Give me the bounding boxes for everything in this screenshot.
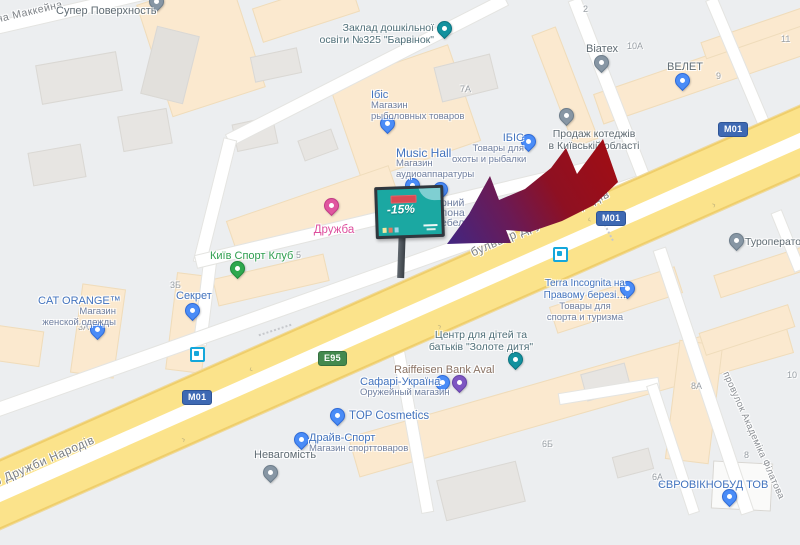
poi-pin-icon[interactable]	[726, 230, 747, 251]
billboard-note	[423, 224, 437, 226]
traffic-arrow-icon	[434, 315, 443, 324]
building-number: 6Б	[542, 439, 553, 449]
poi-label-velet[interactable]: ВЕЛЕТ	[654, 61, 716, 73]
transit-stop-icon[interactable]	[190, 347, 205, 362]
poi-name: Terra Incognita на	[542, 278, 628, 290]
poi-subtitle: Магазин спорттоваров	[309, 444, 408, 455]
poi-name: Продаж котеджів	[538, 128, 650, 140]
traffic-arrow-icon	[708, 193, 717, 202]
poi-name: Заклад дошкільної	[272, 22, 434, 34]
poi-label-barvinok[interactable]: Заклад дошкільної освіти №325 "Барвінок"	[272, 22, 434, 46]
poi-label-viatex[interactable]: Віатех	[572, 43, 632, 55]
poi-subtitle: рыболовных товаров	[371, 112, 464, 123]
poi-label-kyiv-sport-club[interactable]: Київ Спорт Клуб	[210, 250, 293, 262]
poi-name: Дружба	[303, 224, 365, 236]
building-number: 11	[781, 34, 790, 44]
poi-label-drive-sport[interactable]: Драйв-Спорт Магазин спорттоваров	[309, 432, 408, 455]
poi-label-nevahomist[interactable]: Невагомість	[254, 449, 316, 461]
building-number: 3Б	[170, 280, 181, 290]
poi-label-evroviknobud[interactable]: ЄВРОВІКНОБУД ТОВ	[658, 479, 768, 491]
poi-name: TOP Cosmetics	[349, 410, 429, 422]
building-number: 2	[583, 4, 588, 14]
poi-label-zolote-dytia[interactable]: Центр для дітей та батьків "Золоте дитя"	[422, 329, 540, 353]
poi-name: Туроператор	[745, 236, 800, 248]
building-number: 5	[296, 250, 301, 260]
poi-pin-icon[interactable]	[260, 462, 281, 483]
billboard-art	[389, 228, 393, 233]
poi-name: в Київській області	[538, 140, 650, 152]
poi-subtitle: Оружейный магазин	[360, 388, 434, 399]
billboard-ad: -15%	[374, 185, 445, 239]
billboard-discount-text: -15%	[387, 202, 415, 217]
traffic-arrow-icon	[178, 428, 187, 437]
poi-name: освіти №325 "Барвінок"	[272, 34, 434, 46]
road-shield-m01: M01	[596, 211, 626, 226]
map-canvas[interactable]: { "app": {"view": "map"}, "colors": { "h…	[0, 0, 800, 513]
building	[612, 447, 654, 478]
poi-subtitle: женской одежды	[38, 318, 116, 329]
building	[0, 325, 44, 367]
poi-subtitle: Товары для	[452, 144, 524, 155]
transit-stop-icon[interactable]	[553, 247, 568, 262]
poi-label-raiffeisen[interactable]: Raiffeisen Bank Aval	[394, 364, 495, 376]
poi-label-occluded[interactable]: рний лона ебел	[441, 198, 465, 228]
poi-name: Невагомість	[254, 449, 316, 461]
building	[250, 47, 302, 82]
poi-label-ibis-fishing[interactable]: Ібіс Магазин рыболовных товаров	[371, 89, 464, 122]
billboard-art	[395, 227, 399, 232]
road	[194, 138, 236, 263]
poi-subtitle: спорта и туризма	[542, 313, 628, 324]
poi-name: Супер Поверхность	[56, 5, 157, 17]
building-number: 8	[744, 450, 749, 460]
poi-label-touroperator[interactable]: Туроператор	[745, 236, 800, 248]
poi-subtitle: Магазин	[38, 307, 116, 318]
poi-label-top-cosmetics[interactable]: TOP Cosmetics	[349, 410, 429, 422]
building	[27, 144, 86, 187]
building	[436, 461, 526, 522]
billboard-art	[383, 228, 387, 233]
poi-subtitle: аудиоаппаратуры	[396, 170, 474, 181]
poi-name: Віатех	[572, 43, 632, 55]
poi-name: ЄВРОВІКНОБУД ТОВ	[658, 479, 768, 491]
poi-label-terra-incognita[interactable]: Terra Incognita на Правому березі… Товар…	[542, 278, 628, 323]
shop-pin-icon[interactable]	[327, 405, 348, 426]
billboard-sky-art	[418, 185, 445, 201]
building	[297, 129, 338, 162]
building	[117, 108, 172, 152]
poi-label-sekret[interactable]: Секрет	[176, 290, 212, 302]
traffic-arrow-icon	[245, 358, 254, 367]
poi-name: Raiffeisen Bank Aval	[394, 364, 495, 376]
building-number: 8А	[691, 381, 702, 391]
poi-name: ВЕЛЕТ	[654, 61, 716, 73]
poi-name: батьків "Золоте дитя"	[422, 341, 540, 353]
poi-subtitle: Товары для	[542, 302, 628, 313]
poi-label-cat-orange[interactable]: CAT ORANGE™ Магазин женской одежды	[38, 295, 116, 328]
poi-label-cottages[interactable]: Продаж котеджів в Київській області	[538, 128, 650, 152]
road-shield-e95: E95	[318, 351, 347, 366]
building	[35, 51, 123, 105]
poi-name: Секрет	[176, 290, 212, 302]
billboard-note	[427, 228, 436, 230]
poi-name: Київ Спорт Клуб	[210, 250, 293, 262]
building-number: 10	[787, 370, 797, 380]
poi-label-safari-ukraina[interactable]: Сафарі-Україна Оружейный магазин	[360, 376, 434, 399]
building-number: 9	[716, 71, 721, 81]
poi-label-druzhba[interactable]: Дружба	[303, 224, 365, 236]
poi-subtitle: Магазин	[371, 101, 464, 112]
poi-label-ibis-hunting[interactable]: ІБІС Товары для охоты и рыбалки	[452, 132, 524, 165]
road-shield-m01: M01	[718, 122, 748, 137]
poi-subtitle: охоты и рыбалки	[452, 155, 524, 166]
poi-label-super-poverhnost[interactable]: Супер Поверхность	[56, 5, 157, 17]
poi-name: Центр для дітей та	[422, 329, 540, 341]
road-shield-m01: M01	[182, 390, 212, 405]
